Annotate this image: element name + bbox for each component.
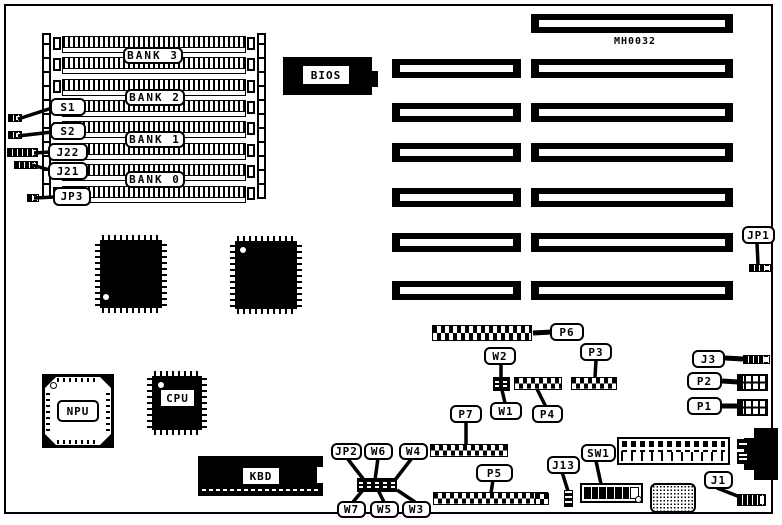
callout-j21: J21 [48, 162, 88, 180]
p7-text: P7 [458, 409, 473, 420]
callout-p2: P2 [687, 372, 722, 390]
bank1-text: BANK 1 [129, 134, 181, 145]
callout-w7: W7 [337, 501, 366, 518]
s2-text: S2 [60, 126, 75, 137]
callout-j22: J22 [48, 143, 88, 161]
callout-p1: P1 [687, 397, 722, 415]
bank2-text: BANK 2 [129, 92, 181, 103]
callout-j13: J13 [547, 456, 580, 474]
p5-text: P5 [487, 468, 502, 479]
callout-w4: W4 [399, 443, 428, 460]
j1-text: J1 [711, 475, 726, 486]
j21-text: J21 [57, 166, 80, 177]
callout-p5: P5 [476, 464, 513, 482]
callout-sw1: SW1 [581, 444, 616, 462]
bank1-label: BANK 1 [125, 131, 185, 148]
jp1-text: JP1 [747, 230, 770, 241]
callout-p7: P7 [450, 405, 482, 423]
j3-text: J3 [701, 354, 716, 365]
callout-p6: P6 [550, 323, 584, 341]
callout-w5: W5 [370, 501, 399, 518]
jp3-text: JP3 [61, 191, 84, 202]
jp2-text: JP2 [335, 446, 358, 457]
bank0-label: BANK 0 [125, 171, 185, 188]
w4-text: W4 [406, 446, 421, 457]
p2-text: P2 [697, 376, 712, 387]
callout-j1: J1 [704, 471, 733, 489]
p1-text: P1 [697, 401, 712, 412]
callout-w2: W2 [484, 347, 516, 365]
p4-text: P4 [540, 409, 555, 420]
callout-jp2: JP2 [331, 443, 362, 460]
s1-text: S1 [60, 102, 75, 113]
bank0-text: BANK 0 [129, 174, 181, 185]
j13-text: J13 [552, 460, 575, 471]
callout-s2: S2 [50, 122, 86, 140]
sw1-text: SW1 [587, 448, 610, 459]
callout-j3: J3 [692, 350, 725, 368]
p3-text: P3 [588, 347, 603, 358]
callout-p4: P4 [532, 405, 563, 423]
callout-s1: S1 [50, 98, 86, 116]
w5-text: W5 [377, 504, 392, 515]
bank2-label: BANK 2 [125, 89, 185, 106]
w6-text: W6 [371, 446, 386, 457]
callout-jp1: JP1 [742, 226, 775, 244]
callout-w1: W1 [490, 402, 522, 420]
callout-jp3: JP3 [53, 187, 91, 206]
w2-text: W2 [492, 351, 507, 362]
motherboard-diagram: MH0032 BANK 3 BANK 2 BANK 1 BANK 0 S1 S2… [0, 0, 782, 525]
j22-text: J22 [57, 147, 80, 158]
callout-w3: W3 [402, 501, 431, 518]
callout-w6: W6 [364, 443, 393, 460]
w3-text: W3 [409, 504, 424, 515]
bank3-text: BANK 3 [127, 50, 179, 61]
bank3-label: BANK 3 [123, 47, 183, 64]
w7-text: W7 [344, 504, 359, 515]
callout-p3: P3 [580, 343, 612, 361]
w1-text: W1 [498, 406, 513, 417]
p6-text: P6 [559, 327, 574, 338]
